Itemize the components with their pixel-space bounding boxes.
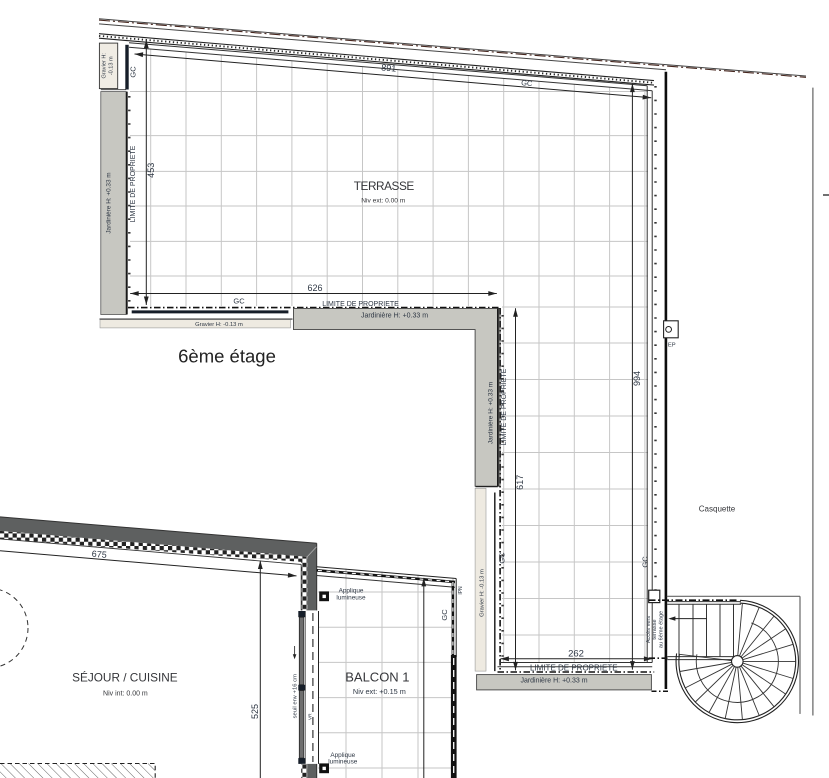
svg-text:Jardinière H: +0.33 m: Jardinière H: +0.33 m	[487, 382, 494, 444]
svg-text:GC: GC	[128, 66, 137, 78]
svg-text:Accès vers: Accès vers	[646, 616, 652, 644]
svg-text:Casquette: Casquette	[699, 505, 736, 514]
svg-text:617: 617	[515, 475, 525, 490]
svg-text:LIMITE DE PROPRIETE: LIMITE DE PROPRIETE	[322, 301, 399, 308]
svg-text:Gravier H: -0.13 m: Gravier H: -0.13 m	[480, 569, 486, 617]
svg-text:lumineuse: lumineuse	[328, 759, 358, 766]
svg-text:LIMITE DE PROPRIETE: LIMITE DE PROPRIETE	[130, 145, 137, 222]
svg-text:525: 525	[250, 704, 260, 719]
svg-text:GC: GC	[233, 297, 245, 306]
svg-text:Jardinière H: +0.33 m: Jardinière H: +0.33 m	[361, 312, 428, 319]
svg-text:LIMITE DE PROPRIETE: LIMITE DE PROPRIETE	[501, 368, 508, 445]
svg-text:Applique: Applique	[339, 588, 364, 595]
svg-text:-0.13 m: -0.13 m	[108, 56, 114, 75]
svg-text:GC: GC	[641, 556, 650, 568]
svg-text:VR: VR	[307, 713, 313, 720]
svg-text:262: 262	[568, 648, 584, 659]
svg-text:GC: GC	[498, 552, 507, 564]
svg-text:6ème étage: 6ème étage	[178, 346, 276, 367]
svg-text:626: 626	[307, 283, 322, 293]
svg-text:Niv ext: 0.00 m: Niv ext: 0.00 m	[361, 197, 405, 204]
svg-text:Gravier H:: Gravier H:	[102, 53, 108, 79]
svg-text:Gravier H: -0.13 m: Gravier H: -0.13 m	[195, 322, 243, 328]
svg-text:Jardinière H: +0.33 m: Jardinière H: +0.33 m	[520, 677, 587, 684]
svg-text:891: 891	[381, 62, 397, 73]
svg-text:GC: GC	[440, 609, 449, 621]
svg-text:SÉJOUR / CUISINE: SÉJOUR / CUISINE	[72, 671, 178, 685]
svg-text:seuil env +16 cm: seuil env +16 cm	[293, 674, 299, 718]
svg-text:453: 453	[146, 163, 156, 178]
svg-text:Niv int: 0.00 m: Niv int: 0.00 m	[103, 690, 148, 697]
svg-text:au 6ème étage: au 6ème étage	[659, 611, 665, 648]
svg-text:994: 994	[632, 371, 642, 386]
svg-text:LIMITE DE PROPRIETE: LIMITE DE PROPRIETE	[530, 663, 618, 672]
svg-text:terrasse: terrasse	[652, 619, 658, 639]
svg-text:Jardinière H: +0.33 m: Jardinière H: +0.33 m	[106, 172, 113, 233]
svg-text:GC: GC	[521, 78, 534, 88]
svg-text:BALCON 1: BALCON 1	[345, 669, 409, 684]
svg-text:675: 675	[91, 549, 107, 560]
svg-text:IPN: IPN	[458, 586, 464, 595]
svg-text:Niv ext: +0.15 m: Niv ext: +0.15 m	[353, 687, 406, 696]
svg-text:lumineuse: lumineuse	[336, 595, 366, 602]
svg-text:EP: EP	[668, 343, 676, 349]
svg-text:TERRASSE: TERRASSE	[354, 179, 415, 193]
